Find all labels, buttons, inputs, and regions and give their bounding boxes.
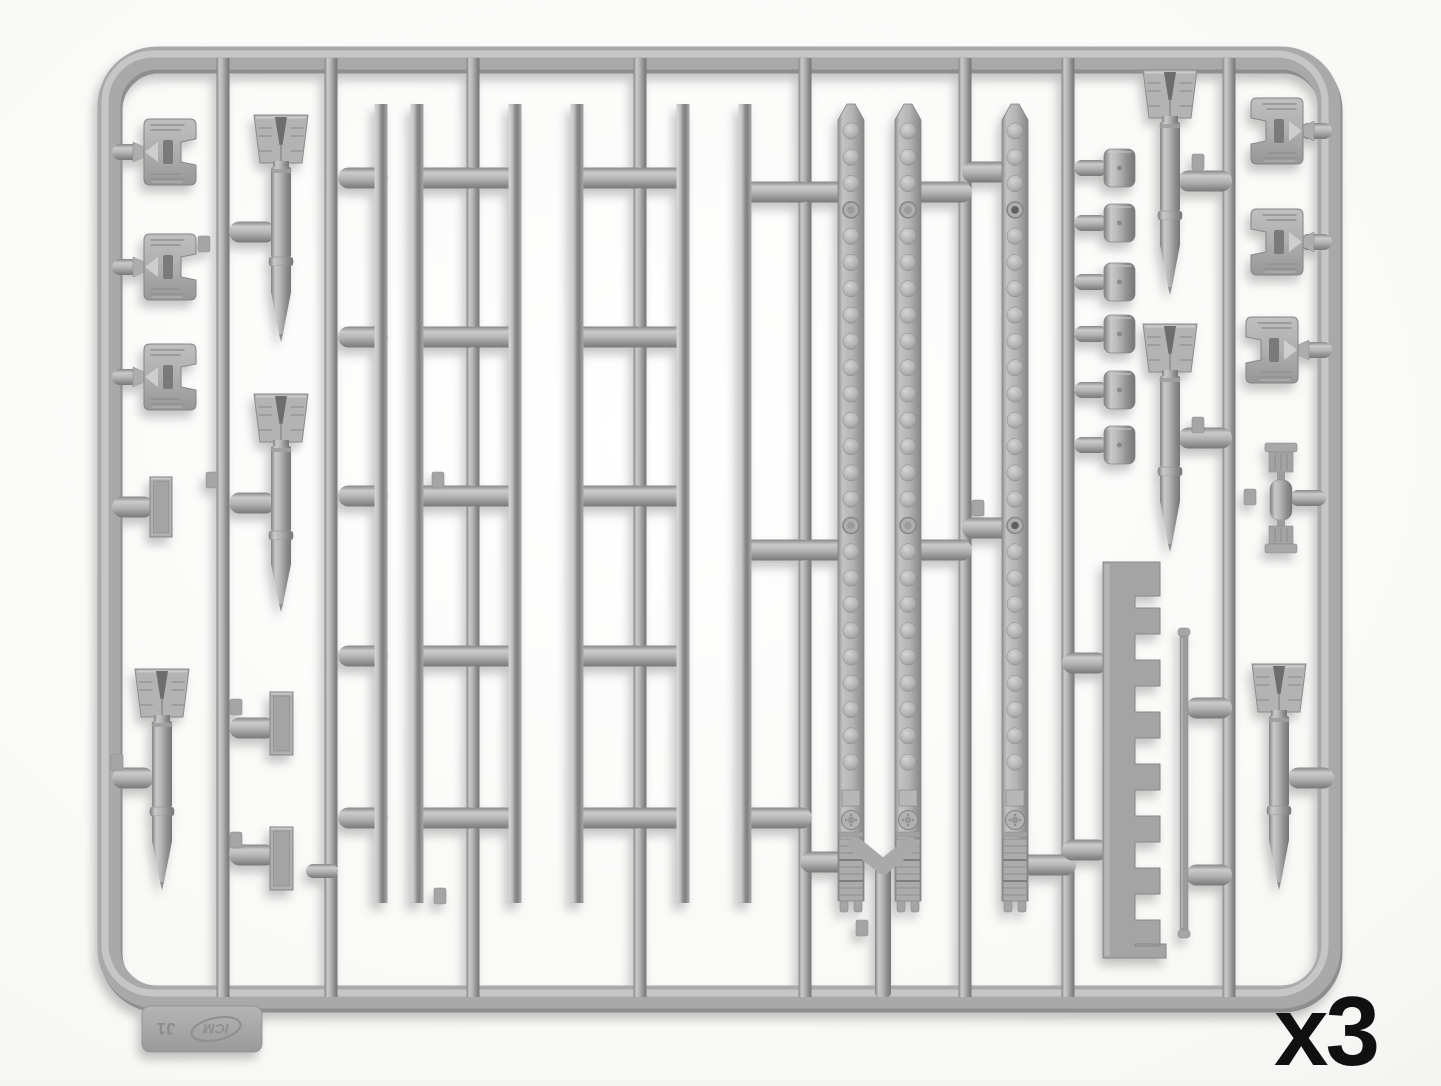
sprue-gate-stub	[1186, 865, 1232, 886]
number-nub	[1192, 417, 1204, 433]
number-nub	[1244, 489, 1256, 505]
rack-part	[1103, 562, 1166, 958]
runner	[634, 58, 647, 997]
sprue-gate-stub	[1178, 428, 1232, 449]
sprue-tag-code-text: J1	[157, 1019, 176, 1038]
cap-part	[1074, 204, 1135, 242]
number-nub	[198, 236, 210, 252]
runner	[467, 58, 480, 997]
runner	[217, 58, 230, 997]
quantity-label: x3	[1274, 982, 1377, 1080]
sprue-gate-stub	[112, 768, 154, 789]
fin-clip-part	[1251, 98, 1314, 164]
sprue-gate-stub	[1288, 768, 1334, 789]
rect-part	[270, 827, 293, 890]
sprue-gate-stub	[306, 864, 338, 878]
cap-part	[1074, 426, 1135, 464]
rail-part	[571, 104, 584, 903]
sprue-gate-stub	[1290, 490, 1326, 506]
runner	[325, 58, 338, 997]
runner-stub-trunk	[875, 862, 891, 997]
cap-part	[1074, 149, 1135, 187]
number-nub	[856, 920, 868, 936]
sprue-gate-stub	[112, 497, 154, 518]
photo-canvas: ICMJ1 x3	[0, 0, 1441, 1080]
rect-part	[270, 692, 293, 755]
number-nub	[1192, 154, 1204, 170]
perforated-strip-part	[895, 104, 921, 912]
perforated-strips	[838, 104, 1028, 912]
fin-clip-part	[133, 119, 196, 185]
number-nub	[434, 888, 446, 904]
perforated-strip-part	[1002, 104, 1028, 912]
fin-clip-part	[1246, 317, 1309, 383]
number-nub	[206, 472, 218, 488]
rail-part	[375, 104, 388, 903]
number-nub	[972, 500, 984, 516]
rect-part	[150, 477, 172, 537]
number-nub	[111, 754, 123, 770]
rail-part	[509, 104, 522, 903]
sprue-gate-stub	[1186, 698, 1232, 719]
sprue-gate-stub	[229, 718, 276, 739]
perforated-strip-part	[838, 104, 864, 912]
sprue-gate-stub	[1178, 171, 1232, 192]
sprue-photo: ICMJ1	[0, 0, 1441, 1080]
rail-part	[411, 104, 424, 903]
sprue-gate-stub	[1062, 653, 1108, 674]
cap-part	[1074, 315, 1135, 353]
fin-clip-part	[133, 344, 196, 410]
rod-part	[1178, 628, 1190, 938]
sprue-gate-stub	[229, 222, 276, 243]
fin-clip-part	[133, 234, 196, 300]
rail-part	[739, 104, 752, 903]
sprue-tag: ICMJ1	[142, 1006, 262, 1052]
sprue-gate-stub	[229, 493, 276, 514]
sprue-tag-brand-text: ICM	[203, 1021, 229, 1037]
number-nub	[230, 699, 242, 715]
sprue-gate-stub	[1062, 840, 1108, 861]
runner	[1223, 58, 1236, 997]
cap-part	[1074, 371, 1135, 409]
cap-part	[1074, 263, 1135, 301]
number-nub	[432, 472, 444, 488]
fin-clip-part	[1251, 209, 1314, 275]
cross-part	[1265, 443, 1297, 553]
sprue: ICMJ1	[105, 54, 1334, 1052]
number-nub	[230, 832, 242, 848]
rail-part	[677, 104, 690, 903]
